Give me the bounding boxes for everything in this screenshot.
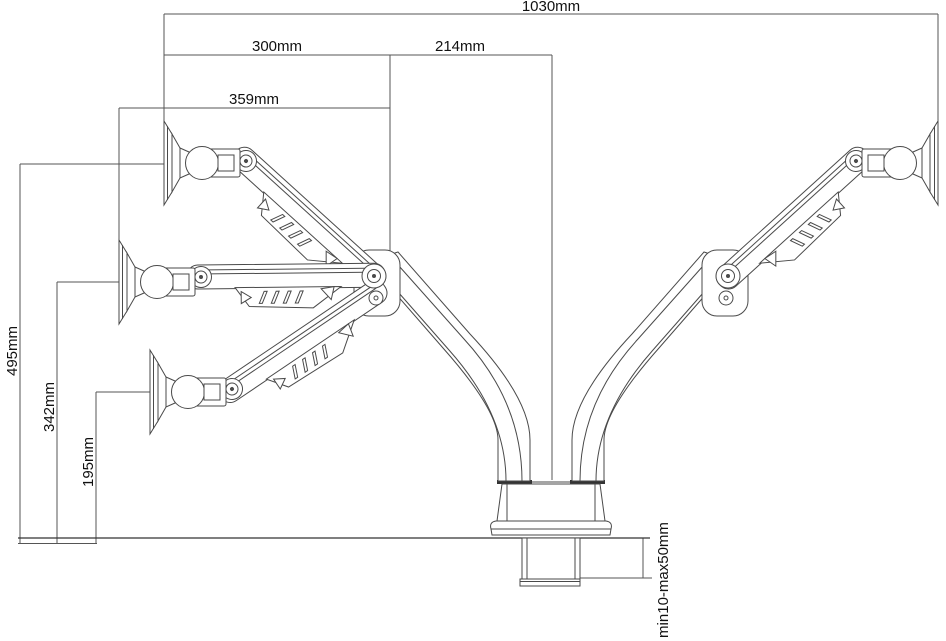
right-link <box>712 143 888 309</box>
right-arm <box>572 121 938 481</box>
clamp-foot-pad <box>520 579 580 586</box>
monitor-arm-dimension-drawing: 1030mm 300mm 214mm 359mm 495mm 342mm 195… <box>0 0 946 641</box>
base-body <box>497 484 605 521</box>
diagram-canvas: 1030mm 300mm 214mm 359mm 495mm 342mm 195… <box>0 0 946 641</box>
dim-label-total-width: 1030mm <box>522 0 580 15</box>
dim-label-height-low: 195mm <box>80 437 97 487</box>
desk-clamp-body <box>522 538 580 579</box>
dim-label-clamp-range: min10-max50mm <box>655 522 672 638</box>
left-vesa-plate-high <box>164 121 240 205</box>
dim-label-span-left: 300mm <box>252 38 302 55</box>
left-arm-positions <box>119 121 530 481</box>
dim-label-height-mid: 342mm <box>41 382 58 432</box>
dim-label-span-right: 214mm <box>435 38 485 55</box>
dim-label-height-high: 495mm <box>4 326 21 376</box>
right-vesa-plate <box>862 121 938 205</box>
left-vesa-plate-low <box>150 350 226 434</box>
dim-label-extension: 359mm <box>229 91 279 108</box>
left-vesa-plate-mid <box>119 240 195 324</box>
base-flange <box>491 521 612 535</box>
base-and-clamp <box>18 480 650 586</box>
